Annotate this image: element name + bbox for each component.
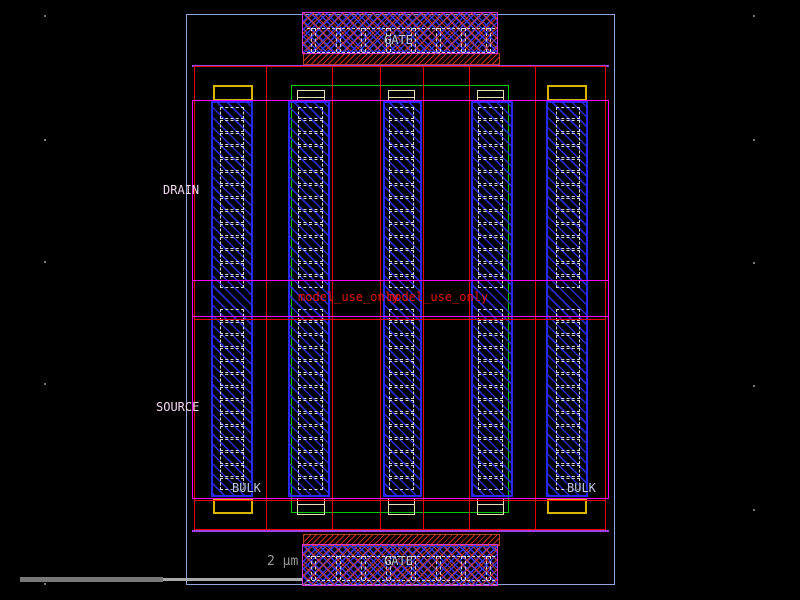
contact-via	[389, 361, 414, 373]
layout-canvas[interactable]: GATE GATE DRAIN SOURCE BULK BULK model_u…	[0, 0, 800, 600]
contact-via	[298, 452, 323, 464]
contact-via	[298, 120, 323, 132]
pad-via-separator	[311, 28, 312, 52]
contact-via	[220, 439, 244, 451]
pad-via-separator	[365, 28, 366, 52]
contact-via	[220, 250, 244, 262]
grid-dot	[44, 15, 46, 17]
contact-via	[389, 250, 414, 262]
pad-via-separator	[465, 556, 466, 580]
contact-via	[556, 120, 580, 132]
pad-via-separator	[461, 556, 462, 580]
gate-pad-top-label: GATE	[384, 34, 413, 46]
contact-via	[478, 426, 503, 438]
contact-via	[478, 465, 503, 477]
grid-dot	[44, 139, 46, 141]
pad-via-separator	[411, 556, 412, 580]
contact-via	[298, 237, 323, 249]
pad-via-separator	[415, 28, 416, 52]
contact-via	[220, 413, 244, 425]
contact-via	[389, 439, 414, 451]
contact-via	[478, 172, 503, 184]
contact-via	[478, 361, 503, 373]
contact-via	[298, 374, 323, 386]
bulk-right-label: BULK	[567, 482, 596, 494]
contact-via	[389, 465, 414, 477]
contact-via	[556, 237, 580, 249]
contact-via	[298, 348, 323, 360]
pad-via-separator	[365, 556, 366, 580]
pad-via-separator	[486, 556, 487, 580]
contact-via	[556, 361, 580, 373]
grid-dot	[753, 139, 755, 141]
scale-label: 2 μm	[267, 555, 298, 569]
contact-via	[220, 198, 244, 210]
pad-via-separator	[390, 28, 391, 52]
bulk-left-label: BULK	[232, 482, 261, 494]
contact-via	[389, 387, 414, 399]
contact-via	[220, 146, 244, 158]
contact-via	[389, 159, 414, 171]
contact-via	[220, 185, 244, 197]
contact-via	[389, 224, 414, 236]
contact-via	[556, 276, 580, 288]
contact-via	[389, 452, 414, 464]
contact-via	[298, 107, 323, 119]
contact-via	[298, 387, 323, 399]
pad-via-separator	[386, 28, 387, 52]
pad-via-separator	[486, 28, 487, 52]
contact-via	[556, 400, 580, 412]
contact-via	[220, 387, 244, 399]
implant-line-top	[192, 100, 609, 101]
contact-via	[389, 348, 414, 360]
contact-via	[220, 426, 244, 438]
gate-pad-top[interactable]: GATE	[302, 12, 498, 54]
pad-via-separator	[440, 556, 441, 580]
pad-via-separator	[340, 28, 341, 52]
implant-line-mid-lower	[192, 316, 609, 317]
contact-via	[220, 374, 244, 386]
contact-via	[298, 159, 323, 171]
contact-via	[556, 185, 580, 197]
contact-via	[556, 250, 580, 262]
contact-via	[298, 250, 323, 262]
contact-via	[220, 335, 244, 347]
pad-via-separator	[336, 556, 337, 580]
contact-via	[220, 263, 244, 275]
contact-via	[298, 224, 323, 236]
contact-via	[556, 198, 580, 210]
contact-via	[556, 413, 580, 425]
grid-dot	[753, 509, 755, 511]
contact-via	[389, 400, 414, 412]
pad-via-separator	[490, 28, 491, 52]
scale-bar-line	[163, 578, 302, 581]
pad-via-separator	[311, 556, 312, 580]
contact-via	[478, 120, 503, 132]
contact-via	[220, 172, 244, 184]
contact-via	[556, 146, 580, 158]
contact-via	[556, 107, 580, 119]
contact-via	[556, 374, 580, 386]
contact-via	[389, 211, 414, 223]
pad-via-separator	[440, 28, 441, 52]
contact-via	[298, 322, 323, 334]
contact-via	[556, 159, 580, 171]
pad-via-separator	[461, 28, 462, 52]
grid-dot	[753, 262, 755, 264]
contact-via	[298, 276, 323, 288]
contact-via	[298, 400, 323, 412]
pad-via-separator	[436, 28, 437, 52]
contact-via	[478, 133, 503, 145]
contact-via	[556, 426, 580, 438]
contact-via	[478, 107, 503, 119]
contact-via	[220, 322, 244, 334]
contact-via	[220, 107, 244, 119]
contact-via	[389, 146, 414, 158]
contact-via	[298, 263, 323, 275]
contact-via	[389, 172, 414, 184]
contact-via	[478, 413, 503, 425]
implant-line-mid-upper	[192, 280, 609, 281]
contact-via	[389, 263, 414, 275]
grid-dot	[753, 385, 755, 387]
pad-via-separator	[361, 556, 362, 580]
contact-via	[220, 237, 244, 249]
contact-via	[556, 172, 580, 184]
contact-via	[478, 322, 503, 334]
pad-via-separator	[386, 556, 387, 580]
contact-via	[556, 452, 580, 464]
contact-via	[478, 263, 503, 275]
contact-via	[556, 335, 580, 347]
contact-via	[478, 276, 503, 288]
contact-via	[389, 335, 414, 347]
contact-via	[298, 172, 323, 184]
contact-via	[389, 322, 414, 334]
contact-via	[556, 439, 580, 451]
contact-via	[478, 348, 503, 360]
contact-via	[478, 374, 503, 386]
contact-via	[298, 465, 323, 477]
grid-dot	[44, 383, 46, 385]
contact-via	[298, 146, 323, 158]
contact-via	[389, 237, 414, 249]
contact-via	[298, 133, 323, 145]
pad-via-separator	[340, 556, 341, 580]
contact-via	[389, 133, 414, 145]
contact-via	[389, 426, 414, 438]
pad-via-separator	[390, 556, 391, 580]
contact-via	[389, 413, 414, 425]
contact-via	[220, 133, 244, 145]
source-label: SOURCE	[156, 401, 199, 413]
scale-bar-segment	[20, 577, 163, 582]
contact-via	[556, 322, 580, 334]
contact-via	[389, 120, 414, 132]
contact-via	[389, 374, 414, 386]
contact-via	[556, 224, 580, 236]
contact-via	[389, 478, 414, 490]
contact-via	[478, 185, 503, 197]
grid-dot	[753, 15, 755, 17]
contact-via	[298, 478, 323, 490]
contact-via	[220, 361, 244, 373]
contact-via	[220, 348, 244, 360]
contact-via	[298, 211, 323, 223]
pad-via-separator	[415, 556, 416, 580]
contact-via	[478, 452, 503, 464]
contact-via	[298, 185, 323, 197]
contact-via	[556, 465, 580, 477]
pad-via-separator	[490, 556, 491, 580]
pad-via-separator	[411, 28, 412, 52]
contact-via	[220, 400, 244, 412]
contact-via	[556, 387, 580, 399]
contact-via	[478, 159, 503, 171]
contact-via	[298, 361, 323, 373]
well-lower-line	[194, 500, 606, 501]
contact-via	[220, 211, 244, 223]
contact-via	[220, 159, 244, 171]
contact-via	[556, 211, 580, 223]
poly-finger-line	[535, 66, 536, 530]
contact-via	[478, 439, 503, 451]
pad-via-separator	[436, 556, 437, 580]
contact-via	[556, 263, 580, 275]
contact-via	[389, 276, 414, 288]
contact-via	[478, 478, 503, 490]
contact-via	[478, 237, 503, 249]
pad-via-row	[307, 580, 495, 581]
poly-finger-line	[266, 66, 267, 530]
implant-line-bottom	[192, 498, 609, 499]
pad-via-separator	[465, 28, 466, 52]
contact-via	[298, 426, 323, 438]
contact-via	[389, 185, 414, 197]
contact-via	[478, 250, 503, 262]
contact-via	[389, 107, 414, 119]
gate-strap-top[interactable]	[303, 53, 500, 65]
contact-via	[298, 413, 323, 425]
contact-via	[478, 211, 503, 223]
drain-label: DRAIN	[163, 184, 199, 196]
contact-via	[478, 224, 503, 236]
contact-via	[298, 439, 323, 451]
contact-via	[478, 335, 503, 347]
contact-via	[220, 276, 244, 288]
contact-via	[220, 465, 244, 477]
contact-via	[298, 198, 323, 210]
contact-via	[478, 146, 503, 158]
watermark-text-2: model_use_only	[387, 291, 488, 303]
contact-via	[556, 133, 580, 145]
contact-via	[298, 335, 323, 347]
pad-via-row	[307, 52, 495, 53]
contact-via	[220, 224, 244, 236]
pad-via-separator	[361, 28, 362, 52]
contact-via	[389, 198, 414, 210]
gate-pad-bottom[interactable]: GATE	[302, 544, 498, 586]
watermark-text-1: model_use_only	[298, 291, 399, 303]
contact-via	[556, 348, 580, 360]
well-mid-line	[194, 319, 606, 320]
grid-dot	[44, 583, 46, 585]
pad-via-separator	[315, 28, 316, 52]
contact-via	[478, 387, 503, 399]
contact-via	[478, 198, 503, 210]
pad-via-separator	[315, 556, 316, 580]
grid-dot	[44, 261, 46, 263]
contact-via	[220, 452, 244, 464]
contact-via	[478, 400, 503, 412]
pad-via-separator	[336, 28, 337, 52]
contact-via	[220, 120, 244, 132]
